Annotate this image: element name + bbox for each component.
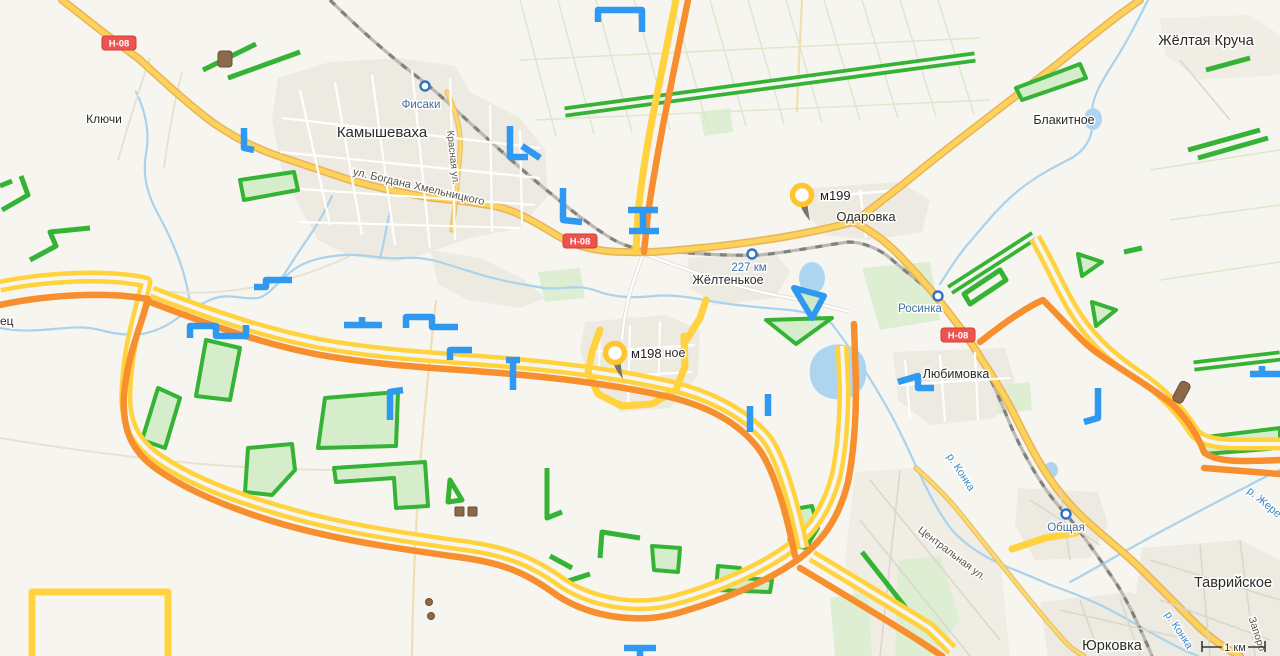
pin-icon [606,344,625,363]
map-label: Любимовка [923,367,990,381]
station-icon [1062,510,1071,519]
pin-icon [793,186,812,205]
map-label: ное [665,346,686,360]
map-label: Камышеваха [337,124,428,141]
map-label: Юрковка [1082,638,1143,654]
station-icon [748,250,757,259]
station-icon [421,82,430,91]
road-badge-label: Н-08 [948,331,969,342]
map-label: Жёлтенькое [692,273,763,287]
map-label: Ключи [86,112,122,126]
station-icon [934,292,943,301]
map-canvas[interactable]: Фисаки227 кмРосинкаОбщая Н-08Н-08Н-08 Кл… [0,0,1280,656]
station-label: Общая [1047,522,1085,534]
station-label: Росинка [898,303,942,315]
map-label: Блакитное [1033,113,1094,127]
scale-label: 1 км [1224,642,1246,654]
map-label: Таврийское [1194,575,1272,591]
road-badge-label: Н-08 [109,39,130,50]
map-label: Одаровка [836,209,896,224]
road-badge-label: Н-08 [570,237,591,248]
station-label: Фисаки [402,99,441,111]
placemark-label: м199 [820,188,851,203]
map-label: ец [0,314,14,328]
map-label: Жёлтая Круча [1158,33,1254,49]
placemark-label: м198 [631,346,662,361]
